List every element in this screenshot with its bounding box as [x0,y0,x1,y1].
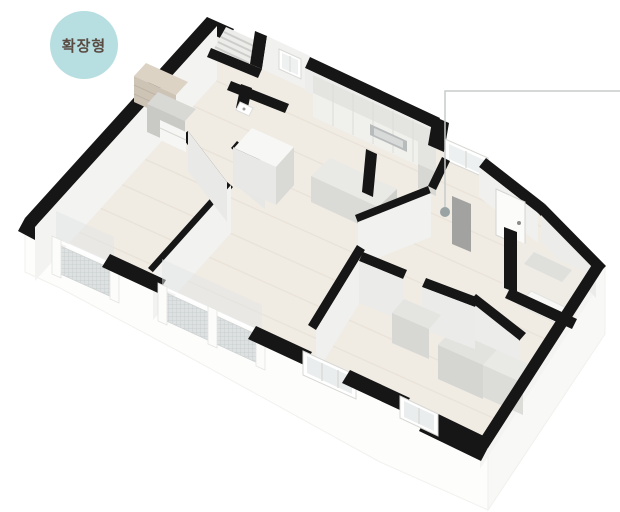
railing-post [52,236,61,278]
railing-post [158,283,167,325]
callout-marker-dot [440,207,450,217]
screenshot-stage: 확장형 [0,0,620,512]
door-handle [517,221,521,225]
type-badge-label: 확장형 [62,35,106,56]
doorway-opening [452,196,471,252]
railing-post [208,306,217,348]
type-badge: 확장형 [50,11,118,79]
